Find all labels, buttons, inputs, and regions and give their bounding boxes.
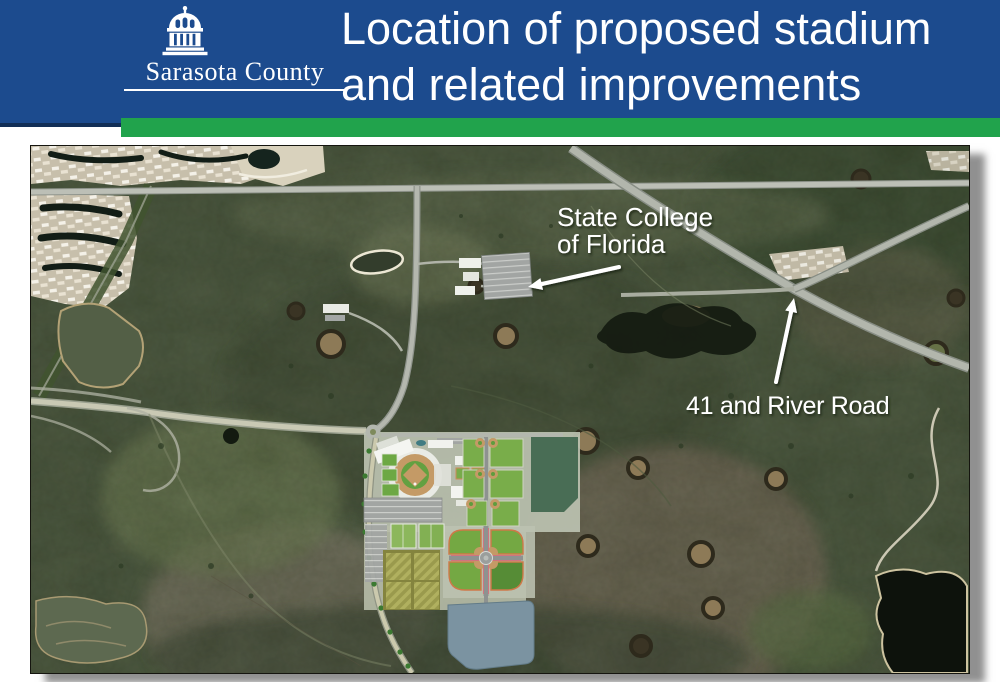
practice-fields-north [463, 437, 523, 528]
slide-title-line1: Location of proposed stadium [341, 1, 931, 57]
river-road-label: 41 and River Road [686, 392, 889, 420]
dome-gazebo-icon [162, 5, 208, 57]
green-accent-bar [121, 118, 1000, 137]
main-parking-lot [364, 498, 442, 522]
retention-pond [448, 601, 534, 669]
org-logo-name: Sarasota County [124, 57, 346, 91]
slide-title-line2: and related improvements [341, 57, 931, 113]
header-left-extension [0, 118, 121, 127]
slide-title: Location of proposed stadium and related… [341, 1, 931, 113]
aerial-map-image: State College of Florida 41 and River Ro… [30, 145, 970, 674]
state-college-label-line2: of Florida [557, 229, 666, 259]
state-college-label-line1: State College [557, 202, 713, 232]
agricultural-field-grid [383, 550, 440, 610]
preserve-parcel [531, 437, 578, 512]
west-practice-greens [382, 454, 399, 496]
